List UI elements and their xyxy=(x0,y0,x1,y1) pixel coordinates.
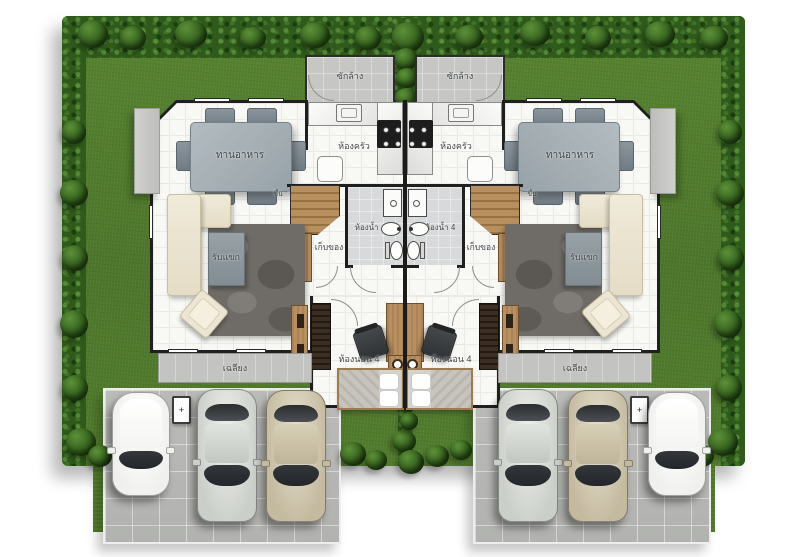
unit-left: ซักล้าง ห้องครัว ทานอาหาร ขึ้น เก็บของ xyxy=(150,55,405,408)
living-label: รับแขก xyxy=(560,250,608,264)
window xyxy=(149,205,153,239)
car-white-left xyxy=(112,392,170,496)
kitchen-sink xyxy=(448,104,474,122)
car-silver-right xyxy=(498,389,558,522)
fridge xyxy=(317,156,343,182)
window xyxy=(657,205,661,239)
kitchen-label: ห้องครัว xyxy=(328,139,380,152)
desk xyxy=(386,303,404,362)
storage-door-arc xyxy=(472,266,494,288)
car-silver-left xyxy=(197,389,257,522)
terrace-label: เฉลียง xyxy=(206,361,264,375)
laundry-label: ซักล้าง xyxy=(310,69,390,83)
bathroom-wall-bottom-b xyxy=(405,265,419,268)
window xyxy=(580,98,616,102)
stairs-label: ขึ้น xyxy=(268,189,288,200)
laundry-label: ซักล้าง xyxy=(420,69,500,83)
stairs-label: ขึ้น xyxy=(522,189,542,200)
pillow xyxy=(379,390,399,407)
bed xyxy=(406,368,473,410)
shower xyxy=(408,189,427,217)
window xyxy=(194,98,230,102)
kitchen-sink xyxy=(336,104,362,122)
sofa-arm-side xyxy=(167,194,201,296)
floor-plan-scene: + + ซักล้าง ห้องครัว ทานอาหาร xyxy=(0,0,800,557)
bathroom-sink xyxy=(381,222,401,236)
living-label: รับแขก xyxy=(202,250,250,264)
pillow xyxy=(411,390,431,407)
car-beige-left xyxy=(266,390,326,522)
bathroom-door-arc xyxy=(350,267,376,293)
storage-door-arc xyxy=(316,266,338,288)
party-wall xyxy=(403,100,407,408)
side-awning xyxy=(650,108,676,194)
window xyxy=(526,98,562,102)
bed-blanket xyxy=(339,370,379,408)
fridge xyxy=(467,156,493,182)
stove xyxy=(377,120,401,148)
toilet xyxy=(385,241,403,260)
window xyxy=(248,98,284,102)
dining-label: ทานอาหาร xyxy=(528,148,612,163)
bed xyxy=(337,368,404,410)
side-awning xyxy=(134,108,160,194)
console-handle xyxy=(297,314,304,328)
dining-label: ทานอาหาร xyxy=(198,148,282,163)
wardrobe xyxy=(311,303,331,370)
bathroom-sink xyxy=(409,222,429,236)
console-handle xyxy=(506,314,513,328)
toilet xyxy=(407,241,425,260)
pillow xyxy=(411,373,431,390)
bed-blanket xyxy=(431,370,471,408)
car-beige-right xyxy=(568,390,628,522)
kitchen-label: ห้องครัว xyxy=(430,139,482,152)
wardrobe xyxy=(479,303,499,370)
bedroom-label: ห้องนอน 4 xyxy=(422,352,480,365)
pillow xyxy=(379,373,399,390)
unit-right: ซักล้าง ห้องครัว ทานอาหาร ขึ้น เก็บของ xyxy=(405,55,660,408)
sofa-arm-side xyxy=(609,194,643,296)
shower xyxy=(383,189,402,217)
bathroom-door-arc xyxy=(434,267,460,293)
car-white-right xyxy=(648,392,706,496)
terrace-label: เฉลียง xyxy=(546,361,604,375)
bedroom-label: ห้องนอน 4 xyxy=(330,352,388,365)
